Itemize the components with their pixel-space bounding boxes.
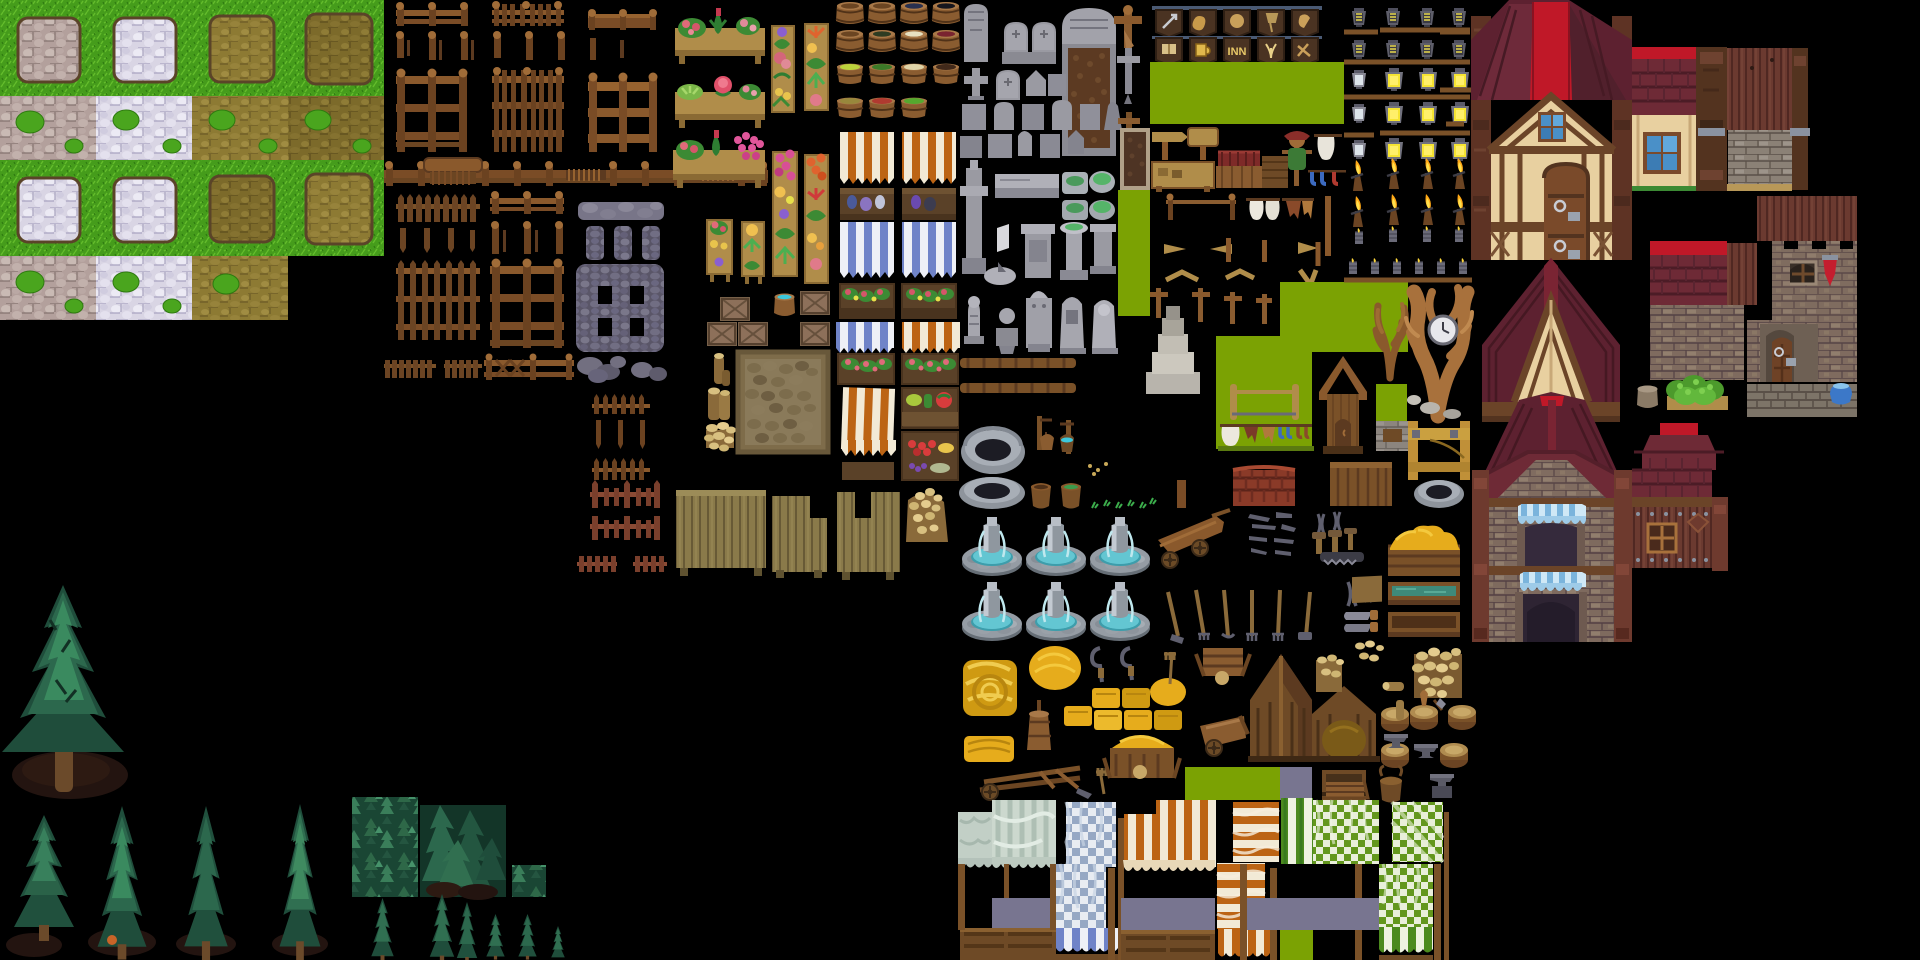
svg-text:INN: INN	[1228, 46, 1247, 58]
